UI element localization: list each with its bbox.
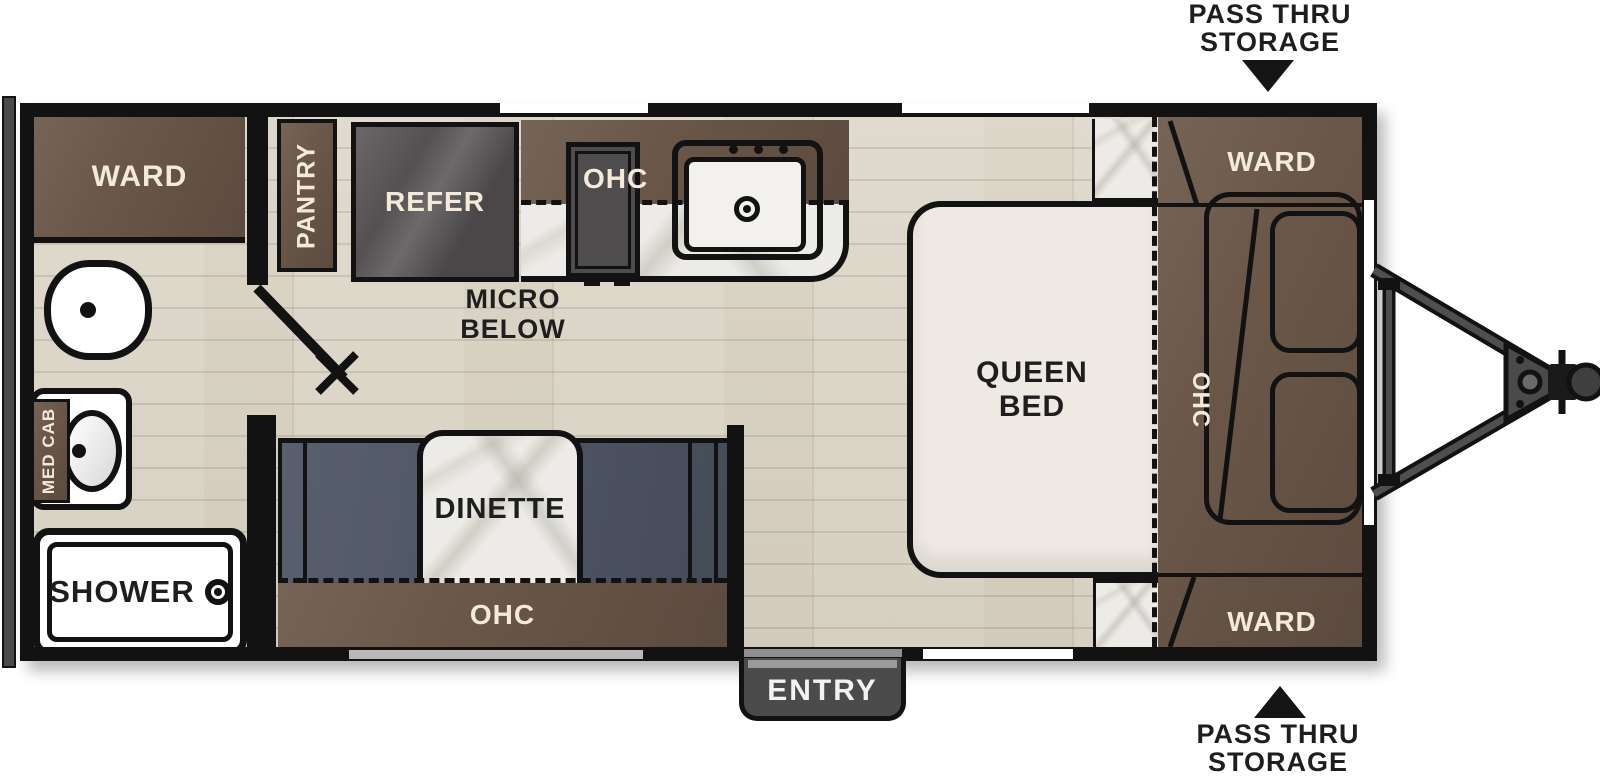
bed-base-diagonal [1220, 209, 1257, 520]
ward-bottom-diagonal [1170, 577, 1194, 647]
hitch-a-frame [1374, 270, 1600, 494]
ward-top-diagonal [1170, 121, 1197, 205]
floorplan-canvas: WARD MED CAB SHOWER PANTRY REFER OHC [0, 0, 1600, 782]
hitch-ball [1569, 365, 1600, 399]
linework-overlay [0, 0, 1600, 782]
